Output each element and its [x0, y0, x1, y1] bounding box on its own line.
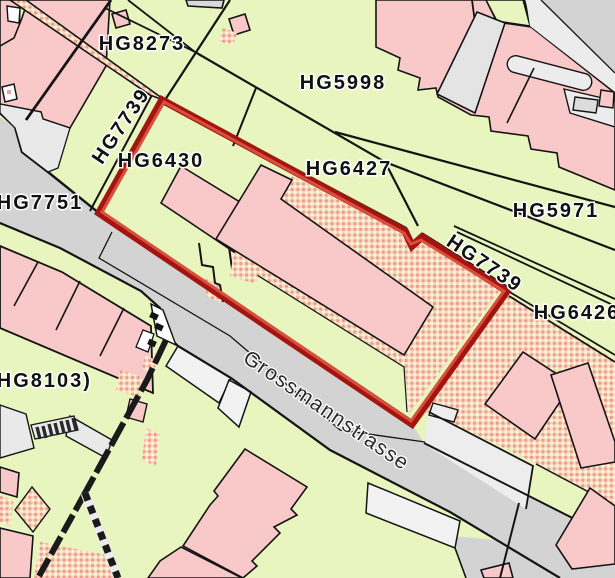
svg-text:HG5971: HG5971 [513, 200, 600, 222]
svg-text:HG7751: HG7751 [0, 192, 83, 214]
svg-text:HG6426: HG6426 [534, 302, 615, 324]
svg-text:HG5998: HG5998 [300, 72, 387, 94]
svg-text:HG8273: HG8273 [99, 33, 186, 55]
svg-text:(HG8103): (HG8103) [0, 370, 92, 392]
svg-text:HG6427: HG6427 [306, 158, 393, 180]
svg-text:HG6430: HG6430 [118, 150, 205, 172]
